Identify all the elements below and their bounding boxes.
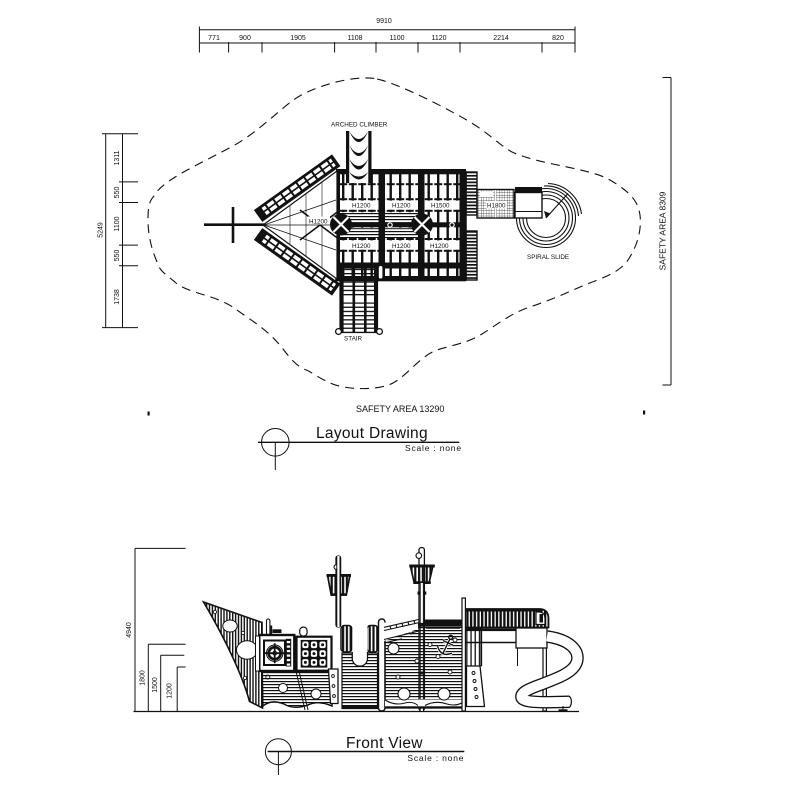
svg-text:H1200: H1200 [352,243,371,250]
svg-text:900: 900 [239,35,251,42]
svg-text:5249: 5249 [98,222,105,238]
svg-text:H1200: H1200 [430,243,449,250]
svg-text:H1200: H1200 [392,243,411,250]
svg-text:4940: 4940 [126,622,133,638]
svg-text:1800: 1800 [140,670,147,686]
svg-text:550: 550 [114,250,121,262]
svg-text:9910: 9910 [376,18,392,25]
svg-text:1100: 1100 [389,35,404,42]
svg-text:Scale : none: Scale : none [405,443,462,453]
svg-text:771: 771 [208,35,220,42]
svg-text:1738: 1738 [114,289,121,305]
svg-text:1905: 1905 [290,35,306,42]
svg-text:H1200: H1200 [392,203,411,210]
svg-text:SPIRAL SLIDE: SPIRAL SLIDE [527,254,569,261]
svg-text:SAFETY AREA 13290: SAFETY AREA 13290 [356,404,444,414]
svg-text:820: 820 [552,35,564,42]
svg-text:ARCHED CLIMBER: ARCHED CLIMBER [331,122,388,129]
svg-text:H1800: H1800 [487,203,506,210]
svg-text:H1500: H1500 [431,203,450,210]
svg-text:Layout Drawing: Layout Drawing [316,425,428,442]
svg-text:H1200: H1200 [352,203,371,210]
svg-text:2214: 2214 [493,35,509,42]
svg-text:1200: 1200 [167,683,174,699]
svg-text:H1200: H1200 [309,219,328,226]
svg-text:1500: 1500 [152,677,159,693]
svg-text:1108: 1108 [347,35,362,42]
svg-text:1100: 1100 [114,216,121,231]
svg-text:SAFETY AREA 8309: SAFETY AREA 8309 [658,191,668,270]
svg-text:Front View: Front View [346,735,423,752]
svg-text:Scale : none: Scale : none [407,753,464,763]
svg-text:1120: 1120 [431,35,446,42]
svg-text:STAIR: STAIR [344,336,363,343]
svg-text:1311: 1311 [114,150,121,165]
svg-text:550: 550 [114,187,121,199]
